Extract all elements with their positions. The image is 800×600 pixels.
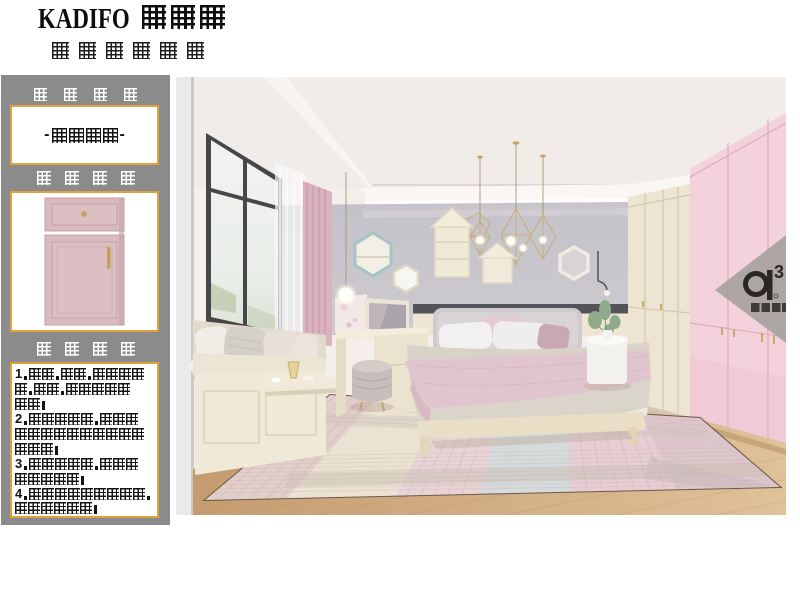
svg-text:3: 3: [774, 262, 784, 282]
